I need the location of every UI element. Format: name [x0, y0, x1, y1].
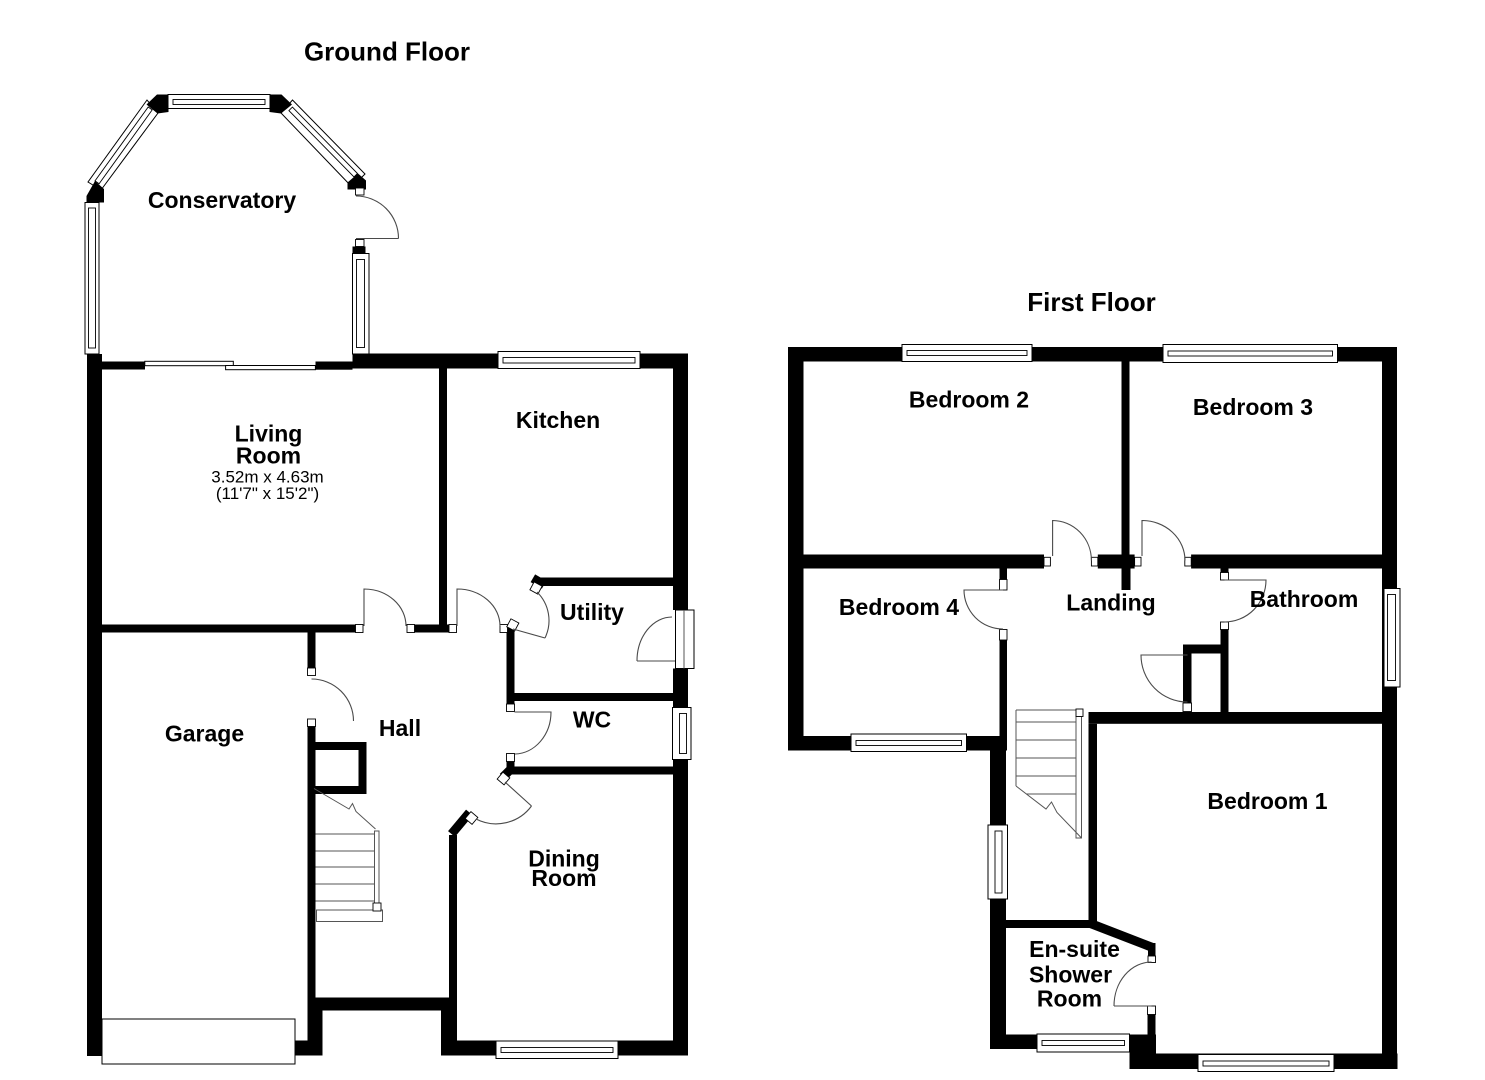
svg-text:Room: Room	[236, 443, 301, 469]
svg-text:WC: WC	[573, 707, 611, 733]
svg-text:Bedroom 4: Bedroom 4	[839, 594, 959, 620]
svg-text:First Floor: First Floor	[1027, 287, 1156, 317]
svg-text:Utility: Utility	[560, 599, 624, 625]
svg-text:Room: Room	[531, 865, 596, 891]
svg-text:En-suite: En-suite	[1029, 936, 1120, 962]
svg-text:Garage: Garage	[165, 721, 244, 747]
svg-text:Kitchen: Kitchen	[516, 407, 600, 433]
svg-text:Bedroom 2: Bedroom 2	[909, 387, 1029, 413]
svg-text:Hall: Hall	[379, 715, 421, 741]
svg-text:Landing: Landing	[1066, 590, 1155, 616]
svg-text:Bathroom: Bathroom	[1250, 586, 1359, 612]
svg-text:Room: Room	[1037, 986, 1102, 1012]
svg-text:(11'7" x 15'2"): (11'7" x 15'2")	[216, 484, 319, 503]
svg-text:Conservatory: Conservatory	[148, 187, 296, 213]
svg-text:Ground Floor: Ground Floor	[304, 37, 470, 67]
svg-text:Bedroom 1: Bedroom 1	[1207, 788, 1327, 814]
svg-text:Bedroom 3: Bedroom 3	[1193, 394, 1313, 420]
svg-text:Shower: Shower	[1029, 962, 1112, 988]
